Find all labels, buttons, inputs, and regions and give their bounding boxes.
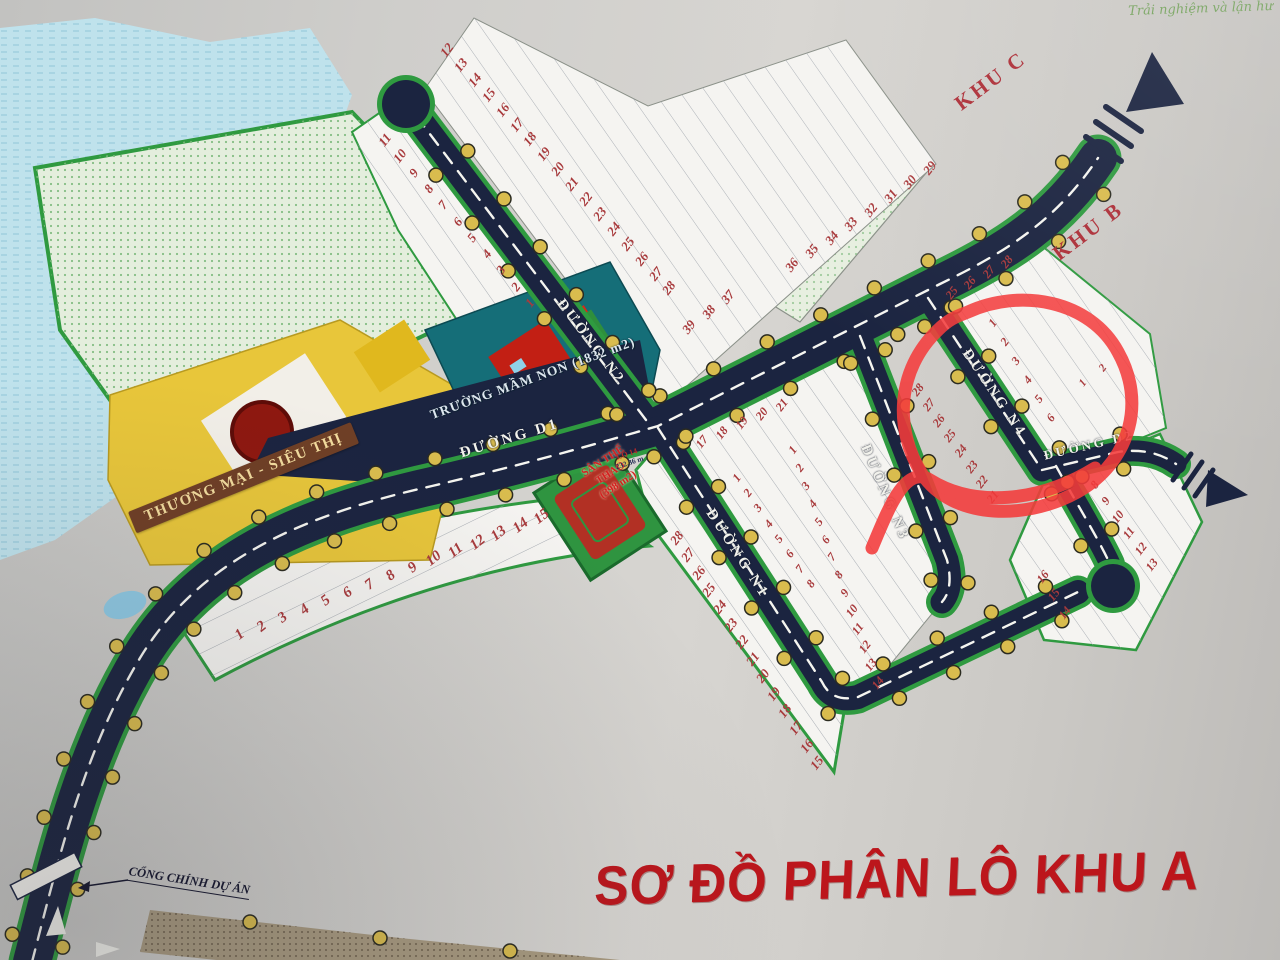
subdivision-map-photo: 1110987654321121314151617181920212223242… <box>0 0 1280 960</box>
commercial-zone-label: THƯƠNG MẠI - SIÊU THỊ <box>128 422 359 533</box>
road-label-duong-n4: ĐƯỜNG N4 <box>958 346 1030 441</box>
road-label-duong-d1: ĐƯỜNG D1 <box>458 416 561 462</box>
road-label-duong-n1: ĐƯỜNG N1 <box>702 506 772 602</box>
sports-field-label: SÂN THỂ THAO (398 m2) <box>566 434 656 512</box>
zone-label-khu-c: KHU C <box>950 46 1032 116</box>
zone-label-khu-b: KHU B <box>1048 197 1129 266</box>
road-label-duong-n3: ĐƯỜNG N3 <box>856 442 912 543</box>
main-gate-label: CỔNG CHÍNH DỰ ÁN <box>127 864 251 900</box>
kindergarten-name: TRƯỜNG MẦM NON <box>428 358 571 422</box>
page-title: SƠ ĐỒ PHÂN LÔ KHU A <box>593 838 1200 918</box>
handwritten-watermark: Trải nghiệm và lận hư <box>1128 0 1273 19</box>
road-label-duong-d2: ĐƯỜNG D2 <box>1042 427 1136 463</box>
